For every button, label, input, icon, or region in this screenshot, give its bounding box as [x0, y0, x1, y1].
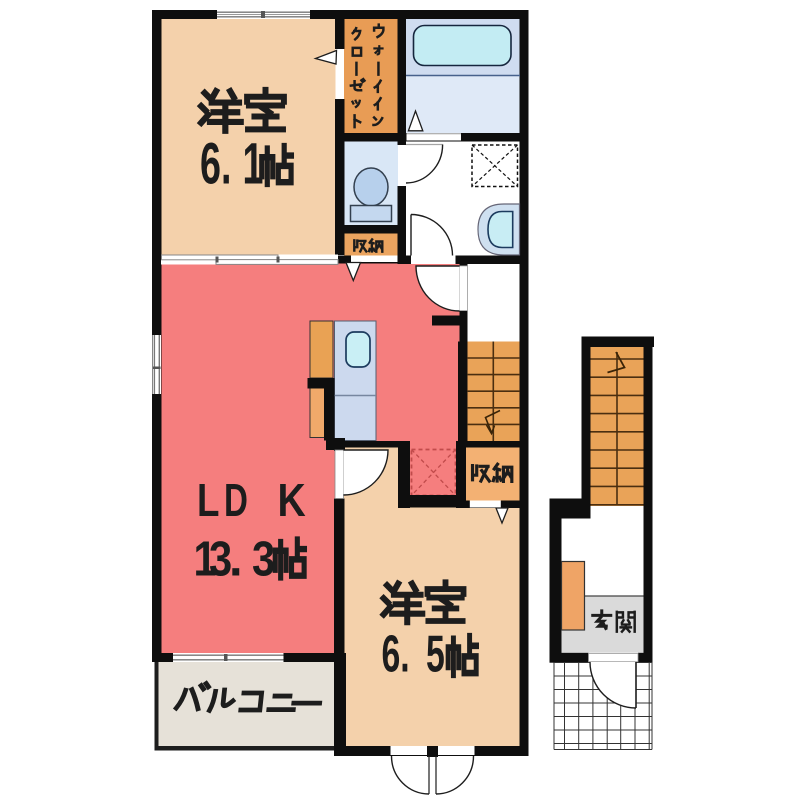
- svg-text:3: 3: [252, 531, 275, 586]
- svg-text:.: .: [229, 533, 243, 587]
- svg-text:K: K: [278, 475, 306, 527]
- svg-text:D: D: [224, 476, 248, 526]
- svg-text:6.: 6.: [382, 625, 410, 683]
- svg-text:6.: 6.: [200, 133, 231, 197]
- svg-text:L: L: [197, 474, 219, 526]
- svg-text:5: 5: [426, 625, 445, 683]
